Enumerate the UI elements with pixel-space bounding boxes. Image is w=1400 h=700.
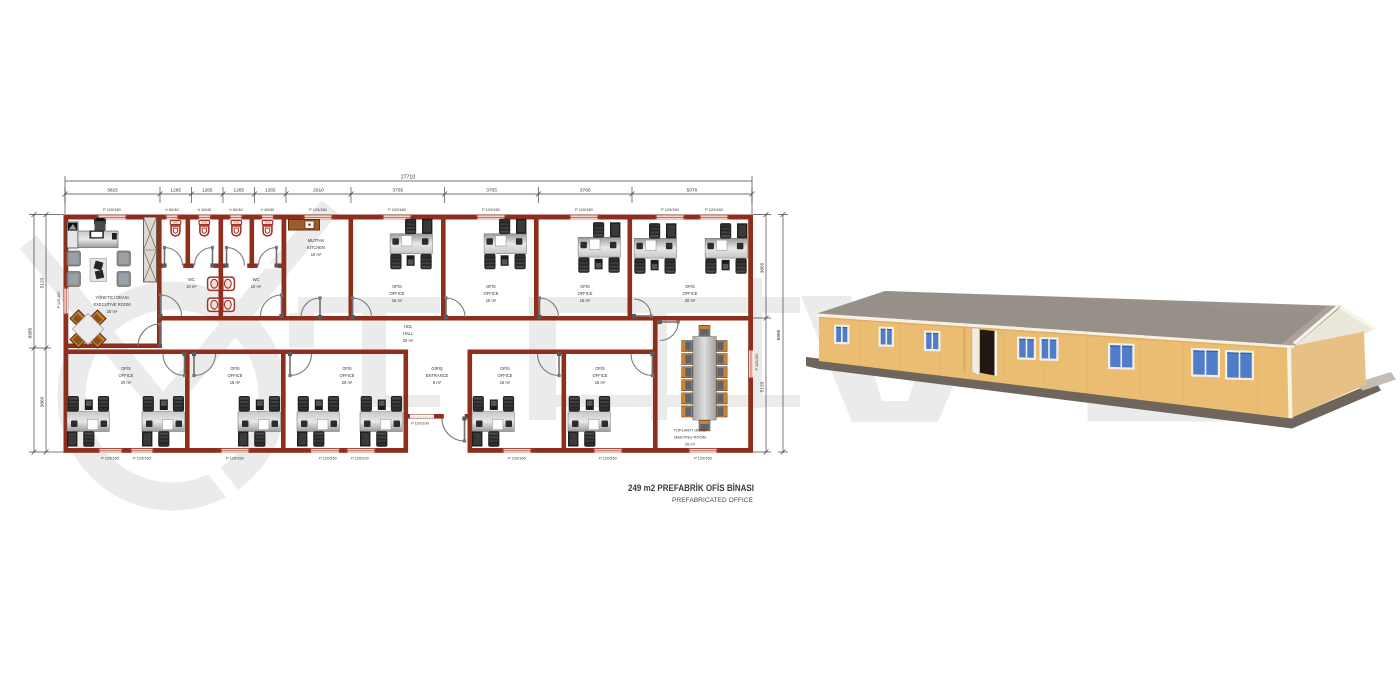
- svg-text:P 120/160: P 120/160: [226, 456, 245, 461]
- svg-text:OFİS: OFİS: [342, 366, 352, 371]
- svg-text:PREFABRICATED OFFICE: PREFABRICATED OFFICE: [672, 497, 754, 504]
- svg-text:MEETING ROOM: MEETING ROOM: [674, 434, 706, 439]
- svg-text:OFİS: OFİS: [121, 366, 131, 371]
- svg-text:P 120/160: P 120/160: [309, 207, 328, 212]
- svg-text:P 120/160: P 120/160: [388, 207, 407, 212]
- svg-text:1265: 1265: [170, 188, 181, 194]
- svg-text:OFFICE: OFFICE: [497, 373, 512, 378]
- svg-text:OFFICE: OFFICE: [577, 291, 592, 296]
- svg-text:ENTRANCE: ENTRANCE: [426, 373, 449, 378]
- svg-text:TOPLANTI ODASI: TOPLANTI ODASI: [673, 428, 706, 433]
- svg-text:P 120/160: P 120/160: [508, 456, 527, 461]
- svg-text:OFİS: OFİS: [580, 284, 590, 289]
- svg-text:P 120/160: P 120/160: [133, 456, 152, 461]
- svg-text:OFFICE: OFFICE: [389, 291, 404, 296]
- svg-text:8985: 8985: [776, 329, 782, 340]
- svg-text:MUTFAK: MUTFAK: [308, 238, 325, 243]
- svg-text:5120: 5120: [760, 381, 766, 392]
- svg-text:8985: 8985: [28, 327, 34, 338]
- svg-text:3765: 3765: [393, 188, 404, 194]
- svg-text:OFFICE: OFFICE: [339, 373, 354, 378]
- svg-text:1265: 1265: [233, 188, 244, 194]
- svg-text:V 60/40: V 60/40: [229, 207, 243, 212]
- svg-text:P 120/160: P 120/160: [705, 207, 724, 212]
- svg-text:P 120/160: P 120/160: [482, 207, 501, 212]
- svg-text:15 m²: 15 m²: [392, 298, 403, 303]
- svg-text:V 60/40: V 60/40: [165, 207, 179, 212]
- svg-text:WC: WC: [253, 277, 260, 282]
- svg-text:OFİS: OFİS: [486, 284, 496, 289]
- svg-text:V 60/40: V 60/40: [198, 207, 212, 212]
- svg-text:GİRİŞ: GİRİŞ: [431, 366, 442, 371]
- svg-text:249 m2 PREFABRİK OFİS BİNASI: 249 m2 PREFABRİK OFİS BİNASI: [628, 483, 754, 494]
- svg-text:20 m²: 20 m²: [107, 309, 118, 314]
- svg-text:P 120/160: P 120/160: [755, 354, 759, 371]
- svg-text:OFFICE: OFFICE: [682, 291, 697, 296]
- svg-text:3860: 3860: [40, 396, 46, 407]
- svg-text:OFİS: OFİS: [500, 366, 510, 371]
- svg-text:P 120/100: P 120/100: [351, 456, 370, 461]
- svg-text:OFFICE: OFFICE: [118, 373, 133, 378]
- svg-text:8 m²: 8 m²: [433, 380, 442, 385]
- svg-text:3765: 3765: [580, 188, 591, 194]
- svg-text:HOL: HOL: [404, 324, 413, 329]
- svg-text:OFİS: OFİS: [392, 284, 402, 289]
- svg-text:2610: 2610: [313, 188, 324, 194]
- svg-text:P 120/160: P 120/160: [661, 207, 680, 212]
- svg-text:YÖNETİCİ ODASI: YÖNETİCİ ODASI: [95, 295, 128, 300]
- svg-text:25 m²: 25 m²: [403, 338, 414, 343]
- svg-text:15 m²: 15 m²: [230, 380, 241, 385]
- svg-text:EXECUTIVE ROOM: EXECUTIVE ROOM: [93, 302, 131, 307]
- svg-text:P 120/100: P 120/100: [411, 421, 430, 426]
- svg-text:20 m²: 20 m²: [121, 380, 132, 385]
- svg-text:OFİS: OFİS: [595, 366, 605, 371]
- svg-text:20 m²: 20 m²: [685, 298, 696, 303]
- svg-text:P 120/160: P 120/160: [599, 456, 618, 461]
- svg-text:P 120/160: P 120/160: [57, 292, 61, 309]
- svg-text:3765: 3765: [486, 188, 497, 194]
- svg-text:P 120/160: P 120/160: [319, 456, 338, 461]
- svg-text:P 120/160: P 120/160: [575, 207, 594, 212]
- svg-text:10 m²: 10 m²: [311, 252, 322, 257]
- svg-text:10 m²: 10 m²: [186, 284, 197, 289]
- svg-text:P 120/160: P 120/160: [101, 456, 120, 461]
- svg-text:15 m²: 15 m²: [580, 298, 591, 303]
- svg-text:OFİS: OFİS: [230, 366, 240, 371]
- svg-text:KITCHEN: KITCHEN: [307, 245, 325, 250]
- svg-text:15 m²: 15 m²: [486, 298, 497, 303]
- svg-text:WC: WC: [188, 277, 195, 282]
- svg-text:V 60/40: V 60/40: [261, 207, 275, 212]
- svg-text:OFFICE: OFFICE: [483, 291, 498, 296]
- svg-text:P 120/160: P 120/160: [103, 207, 122, 212]
- svg-text:26 m²: 26 m²: [685, 441, 696, 446]
- svg-text:P 120/160: P 120/160: [694, 456, 713, 461]
- svg-text:27710: 27710: [401, 175, 416, 181]
- svg-text:OFFICE: OFFICE: [227, 373, 242, 378]
- svg-text:15 m²: 15 m²: [595, 380, 606, 385]
- svg-text:OFİS: OFİS: [685, 284, 695, 289]
- svg-text:15 m²: 15 m²: [500, 380, 511, 385]
- svg-text:5070: 5070: [687, 188, 698, 194]
- svg-text:1265: 1265: [202, 188, 213, 194]
- svg-text:3865: 3865: [760, 262, 766, 273]
- svg-text:HALL: HALL: [403, 331, 414, 336]
- svg-text:20 m²: 20 m²: [342, 380, 353, 385]
- svg-text:OFFICE: OFFICE: [592, 373, 607, 378]
- svg-text:10 m²: 10 m²: [251, 284, 262, 289]
- svg-text:5120: 5120: [40, 277, 46, 288]
- svg-text:3815: 3815: [107, 188, 118, 194]
- svg-text:1265: 1265: [265, 188, 276, 194]
